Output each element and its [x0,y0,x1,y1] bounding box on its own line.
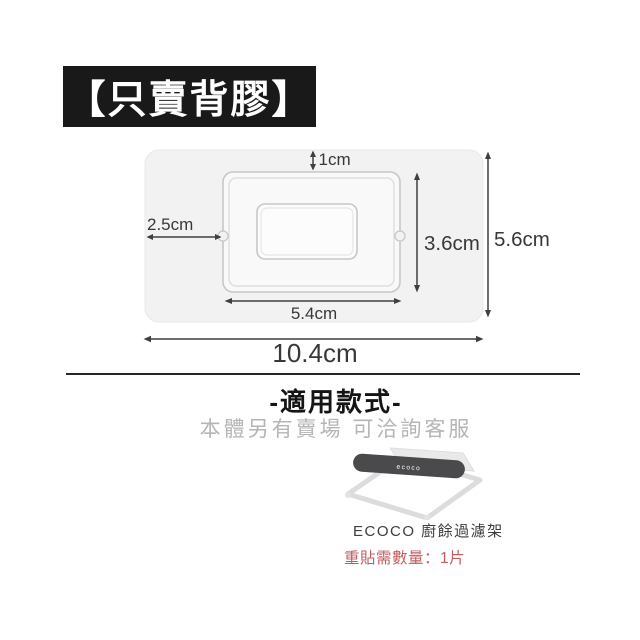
dim-label-5_4cm: 5.4cm [291,304,337,323]
dim-label-10_4cm: 10.4cm [272,338,357,368]
body-sold-separately-note: 本體另有賣場 可洽詢客服 [32,413,640,443]
product-image: 【只賣背膠】 1cm 2.5cm 3. [0,0,640,640]
dim-label-5_6cm: 5.6cm [494,228,550,251]
section-divider [66,373,580,375]
left-notch [218,231,228,241]
dimension-diagram: 1cm 2.5cm 3.6cm 5.6cm 5.4cm [0,0,640,380]
product-caption: ECOCO 廚餘過濾架 [353,520,504,541]
rack-foot-left [345,492,351,498]
ecoco-rack-image: ecoco [343,444,485,520]
dim-sheet-height: 5.6cm [485,152,550,318]
inner-window [257,204,357,259]
restick-quantity-note: 重貼需數量：1片 [344,546,465,568]
right-notch [395,231,405,241]
dim-label-2_5cm: 2.5cm [147,215,193,234]
dim-label-1cm: 1cm [319,150,351,169]
dim-sheet-width: 10.4cm [144,336,484,368]
dim-label-3_6cm: 3.6cm [424,232,480,255]
